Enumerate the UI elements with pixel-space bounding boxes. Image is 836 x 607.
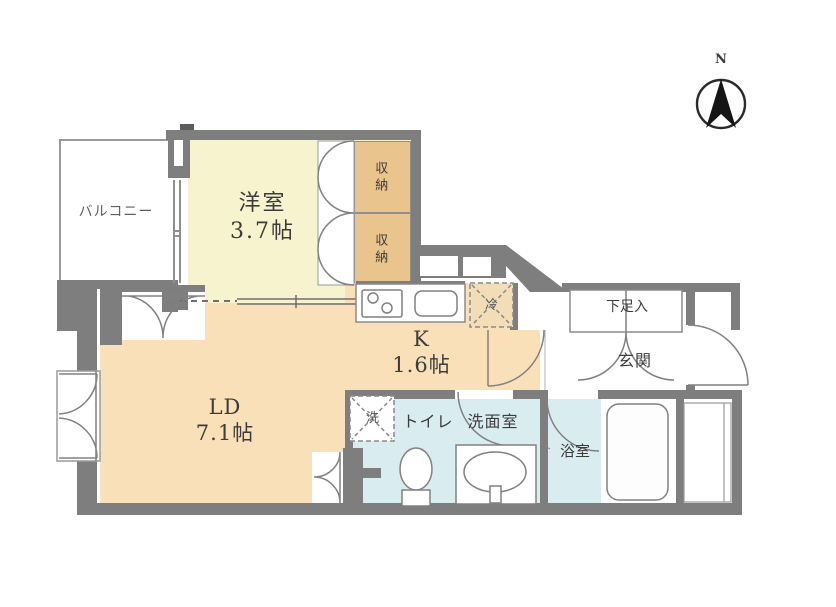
wall [356, 281, 465, 284]
wall [166, 130, 421, 140]
ld-label: LD 7.1帖 [150, 394, 300, 447]
wall [686, 292, 695, 325]
ld-washroom-door-recess [312, 452, 343, 503]
closet-bottom-label: 収納 [371, 220, 387, 280]
entrance-label: 玄関 [603, 351, 667, 371]
wall-slot [174, 140, 183, 166]
wall-niche [463, 257, 491, 276]
washroom-label: 洗面室 [461, 412, 525, 432]
washer-label: 洗 [366, 411, 379, 427]
kitchen-name: K [349, 326, 494, 352]
wall [676, 399, 684, 503]
wall [176, 285, 188, 310]
wall [732, 399, 742, 503]
balcony-label: バルコニー [60, 204, 172, 222]
ld-casement-windows [57, 371, 100, 461]
side-strip [684, 403, 731, 502]
wall [540, 399, 548, 503]
balcony-window [174, 180, 180, 283]
wall [363, 468, 381, 478]
western-room-label: 洋室 3.7帖 [185, 190, 340, 245]
refrigerator-label: 冷 [485, 298, 498, 314]
toilet-label: トイレ [400, 412, 456, 432]
compass-label: N [711, 52, 731, 68]
wall [343, 448, 363, 503]
kitchen-label: K 1.6帖 [349, 326, 494, 379]
kitchen-size: 1.6帖 [349, 352, 494, 378]
wall [77, 461, 97, 515]
wall [77, 331, 97, 371]
western-room-name: 洋室 [185, 190, 340, 218]
ld-size: 7.1帖 [150, 420, 300, 446]
wall [562, 283, 695, 292]
floor-plan: N バルコニー 洋室 3.7帖 収納 収納 K 1.6帖 LD 7.1帖 トイレ… [0, 0, 836, 607]
wall-niche [420, 256, 458, 276]
front-door [688, 325, 748, 385]
wall [180, 124, 194, 130]
wall [88, 503, 742, 515]
wall [513, 390, 548, 399]
western-room-size: 3.7帖 [185, 218, 340, 246]
wall [510, 283, 518, 330]
bathtub [607, 404, 668, 500]
wall [731, 292, 740, 330]
wall [100, 283, 122, 345]
closet-top-label: 収納 [371, 148, 387, 208]
compass-north-icon [697, 79, 745, 128]
wall [345, 390, 455, 399]
wall [57, 280, 97, 331]
wall [345, 399, 353, 448]
shoe-storage-label: 下足入 [598, 299, 656, 317]
wall [686, 385, 695, 399]
wall [695, 283, 740, 292]
wall [598, 390, 742, 399]
bathroom-label: 浴室 [552, 442, 598, 461]
ld-name: LD [150, 394, 300, 420]
